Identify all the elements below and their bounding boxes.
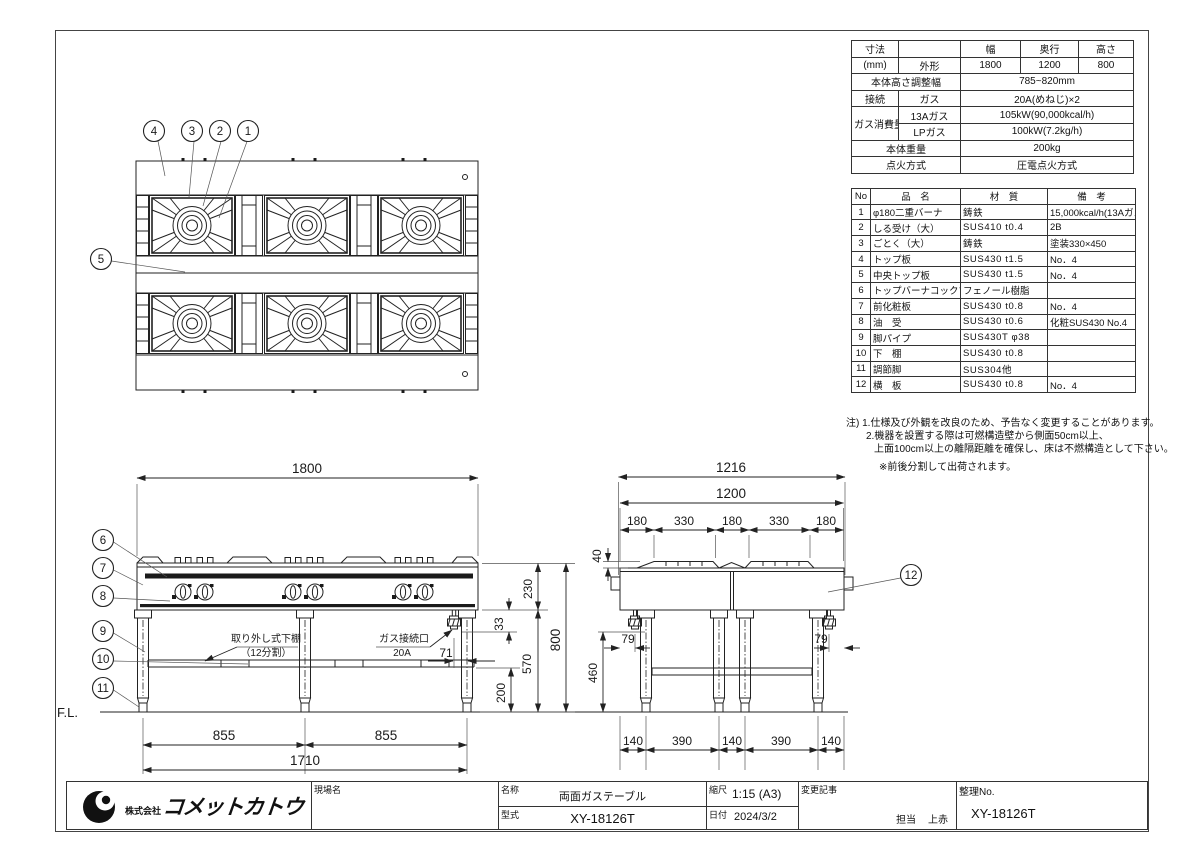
balloon-8: 8	[93, 586, 171, 607]
knob-stub-ticks	[182, 158, 427, 393]
parts-cell	[1048, 283, 1136, 299]
site-name-cell: 現場名	[311, 782, 498, 829]
dim-front-width: 1800	[292, 461, 322, 476]
parts-header: 材 質	[961, 189, 1048, 205]
spec-cell: 200kg	[961, 140, 1134, 157]
side-shelf	[652, 668, 812, 675]
site-name-label: 現場名	[314, 783, 341, 796]
parts-cell	[1048, 330, 1136, 346]
charge-name: 上赤	[928, 811, 948, 826]
dim-side-depth: 1200	[716, 486, 746, 501]
spec-cell: 外形	[899, 57, 961, 74]
balloon-12: 12	[828, 565, 922, 593]
parts-cell: ごとく（大）	[871, 236, 961, 252]
spec-cell: 寸法	[852, 41, 899, 58]
gas-port-label: ガス接続口	[379, 632, 429, 645]
spec-cell: ガス	[899, 90, 961, 107]
dim-pipe-offset-left: 79	[621, 632, 635, 646]
parts-cell: No．4	[1048, 298, 1136, 314]
spec-table: 寸法 幅 奥行 高さ (mm) 外形 1800 1200 800 本体高さ調整幅…	[851, 40, 1134, 174]
parts-cell: No．4	[1048, 251, 1136, 267]
parts-cell: 脚パイプ	[871, 330, 961, 346]
spec-cell: 105kW(90,000kcal/h)	[961, 107, 1134, 124]
dim-foot-390a: 390	[672, 734, 692, 748]
spec-cell: 800	[1079, 57, 1134, 74]
parts-cell: 化粧SUS430 No.4	[1048, 314, 1136, 330]
parts-cell: SUS430T φ38	[961, 330, 1048, 346]
balloon-8-number: 8	[100, 591, 106, 603]
parts-cell: 15,000kcal/h(13Aガス)	[1048, 204, 1136, 220]
parts-cell: 1	[852, 204, 871, 220]
parts-cell: SUS430 t0.8	[961, 377, 1048, 393]
parts-cell: トップバーナコックツマミ	[871, 283, 961, 299]
parts-cell: 横 板	[871, 377, 961, 393]
registry-no-value: XY-18126T	[971, 806, 1036, 821]
dim-side-overall: 1216	[716, 460, 746, 475]
dim-seg-180b: 180	[722, 514, 742, 528]
spec-cell: 20A(めねじ)×2	[961, 90, 1134, 107]
parts-table: No 品 名 材 質 備 考 1 φ180二重バーナ 鋳鉄 15,000kcal…	[851, 188, 1136, 393]
parts-cell	[1048, 345, 1136, 361]
dim-grate-height: 40	[590, 549, 604, 563]
spec-cell: ガス消費量	[852, 107, 899, 140]
parts-cell: 塗装330×450	[1048, 236, 1136, 252]
balloon-4-number: 4	[151, 126, 158, 138]
front-lower-band	[140, 604, 475, 607]
side-pilot-left	[611, 577, 620, 590]
balloon-12-number: 12	[905, 570, 918, 582]
spec-cell: 幅	[961, 41, 1021, 58]
dim-leg-span-2: 855	[375, 728, 398, 743]
parts-cell: 2B	[1048, 220, 1136, 236]
parts-cell: SUS430 t0.6	[961, 314, 1048, 330]
dim-gas-height: 460	[586, 663, 600, 683]
title-block: 株式会社 コメットカトウ 現場名 名称 両面ガステーブル 型式 XY-18126…	[66, 781, 1148, 830]
shelf-label: 取り外し式下棚	[231, 632, 301, 645]
spec-cell: 13Aガス	[899, 107, 961, 124]
date-value: 2024/3/2	[734, 811, 777, 823]
parts-header: 品 名	[871, 189, 961, 205]
spec-cell	[899, 41, 961, 58]
dim-seg-330b: 330	[769, 514, 789, 528]
parts-cell: 鋳鉄	[961, 236, 1048, 252]
spec-cell: 高さ	[1079, 41, 1134, 58]
side-elevation: 1216 1200 180 330 180 330 180	[586, 460, 922, 770]
scale-value: 1:15 (A3)	[732, 787, 781, 801]
balloon-1-number: 1	[245, 126, 251, 138]
pilot-hole	[463, 175, 468, 180]
spec-cell: 点火方式	[852, 157, 961, 174]
plan-view: 4 3 2 1 5	[91, 121, 479, 394]
parts-cell: 6	[852, 283, 871, 299]
balloon-6-number: 6	[100, 535, 106, 547]
date-row: 日付 2024/3/2	[707, 806, 798, 830]
shelf-sub-label: （12分割）	[240, 646, 291, 659]
company-logo: 株式会社 コメットカトウ	[67, 782, 311, 829]
spec-cell: 1200	[1021, 57, 1079, 74]
gas-connection-side-left	[629, 610, 642, 629]
spec-cell: 圧電点火方式	[961, 157, 1134, 174]
dim-leg-span-1: 855	[213, 728, 236, 743]
gas-port-size: 20A	[393, 648, 411, 659]
pilot-hole	[463, 372, 468, 377]
dim-leg-total: 1710	[290, 753, 320, 768]
parts-cell: SUS410 t0.4	[961, 220, 1048, 236]
company-name: コメットカトウ	[161, 791, 304, 821]
balloon-11-number: 11	[97, 683, 109, 695]
dim-foot-140c: 140	[821, 734, 841, 748]
scale-date-cell: 縮尺 1:15 (A3) 日付 2024/3/2	[706, 782, 798, 829]
grate-bar-ticks	[666, 562, 799, 567]
balloon-2: 2	[203, 121, 231, 207]
balloon-10-number: 10	[97, 654, 110, 666]
parts-cell: 2	[852, 220, 871, 236]
dim-seg-180c: 180	[816, 514, 836, 528]
dim-foot-140a: 140	[623, 734, 643, 748]
parts-cell: 5	[852, 267, 871, 283]
drawing-name: 両面ガステーブル	[499, 788, 706, 804]
spec-cell: 本体高さ調整幅	[852, 74, 961, 91]
balloon-5-number: 5	[98, 254, 104, 266]
parts-cell: No．4	[1048, 377, 1136, 393]
balloon-2-number: 2	[217, 126, 223, 138]
gas-connection-side-right	[823, 610, 836, 629]
spec-cell: 1800	[961, 57, 1021, 74]
front-elevation: 1800	[57, 461, 848, 774]
parts-cell: 調節脚	[871, 361, 961, 377]
parts-cell: 4	[852, 251, 871, 267]
balloon-3-number: 3	[189, 126, 195, 138]
date-label: 日付	[709, 808, 727, 821]
parts-cell: SUS430 t0.8	[961, 345, 1048, 361]
charge-label: 担当	[896, 811, 916, 826]
change-record-cell: 変更記事 担当 上赤	[798, 782, 956, 829]
balloon-10: 10	[93, 649, 249, 670]
dim-shelf-height: 200	[494, 683, 508, 703]
balloon-7-number: 7	[100, 563, 106, 575]
parts-cell: 10	[852, 345, 871, 361]
dim-foot-140b: 140	[722, 734, 742, 748]
model-number: XY-18126T	[499, 811, 706, 826]
dim-under-height: 570	[520, 654, 534, 674]
balloon-11: 11	[93, 678, 140, 708]
dim-pipe-offset-right: 79	[814, 632, 828, 646]
parts-cell: 下 棚	[871, 345, 961, 361]
spec-cell: 785~820mm	[961, 74, 1134, 91]
model-row: 型式 XY-18126T	[499, 806, 706, 830]
dim-total-height: 800	[548, 629, 563, 652]
parts-cell: φ180二重バーナ	[871, 204, 961, 220]
parts-cell: フェノール樹脂	[961, 283, 1048, 299]
dim-gas-drop: 33	[492, 617, 506, 631]
spec-cell: 本体重量	[852, 140, 961, 157]
scale-label: 縮尺	[709, 783, 727, 796]
parts-cell: しる受け（大）	[871, 220, 961, 236]
parts-cell: SUS430 t1.5	[961, 251, 1048, 267]
change-record-label: 変更記事	[801, 783, 837, 796]
note-line-4: ※前後分割して出荷されます。	[879, 458, 1016, 473]
shelf-annotation: 取り外し式下棚 （12分割）	[205, 632, 301, 661]
registry-no-cell: 整理No. XY-18126T	[956, 782, 1149, 829]
burner-cap-marks	[175, 558, 433, 564]
parts-header: 備 考	[1048, 189, 1136, 205]
note-line-3: 上面100cm以上の離隔距離を確保し、床は不燃構造として下さい。	[874, 440, 1174, 455]
name-model-cell: 名称 両面ガステーブル 型式 XY-18126T	[498, 782, 706, 829]
dim-seg-330a: 330	[674, 514, 694, 528]
parts-cell: トップ板	[871, 251, 961, 267]
parts-cell: 鋳鉄	[961, 204, 1048, 220]
dim-seg-180a: 180	[627, 514, 647, 528]
front-trim-band	[145, 574, 473, 579]
parts-header: No	[852, 189, 871, 205]
spec-cell: 100kW(7.2kg/h)	[961, 123, 1134, 140]
parts-cell: SUS430 t0.8	[961, 298, 1048, 314]
comet-logo-icon	[79, 786, 119, 826]
parts-cell: 8	[852, 314, 871, 330]
floor-level-label: F.L.	[57, 705, 78, 720]
balloon-3: 3	[182, 121, 203, 198]
spec-cell: 奥行	[1021, 41, 1079, 58]
registry-no-label: 整理No.	[959, 783, 995, 798]
dim-gas-offset: 71	[439, 646, 453, 660]
parts-cell: 11	[852, 361, 871, 377]
parts-cell: No．4	[1048, 267, 1136, 283]
balloon-9-number: 9	[100, 626, 106, 638]
dim-top-depth: 230	[521, 579, 535, 599]
parts-cell: 中央トップ板	[871, 267, 961, 283]
parts-cell: 9	[852, 330, 871, 346]
dim-foot-390b: 390	[771, 734, 791, 748]
spec-cell: (mm)	[852, 57, 899, 74]
spec-cell: LPガス	[899, 123, 961, 140]
parts-cell: 前化粧板	[871, 298, 961, 314]
balloon-7: 7	[93, 558, 144, 586]
parts-cell: 7	[852, 298, 871, 314]
parts-cell: 油 受	[871, 314, 961, 330]
parts-cell: 12	[852, 377, 871, 393]
balloon-4: 4	[144, 121, 166, 177]
spec-cell: 接続	[852, 90, 899, 107]
parts-cell	[1048, 361, 1136, 377]
drawing-sheet: 4 3 2 1 5	[0, 0, 1200, 848]
parts-cell: SUS304他	[961, 361, 1048, 377]
company-prefix: 株式会社	[125, 804, 161, 817]
parts-cell: 3	[852, 236, 871, 252]
parts-cell: SUS430 t1.5	[961, 267, 1048, 283]
